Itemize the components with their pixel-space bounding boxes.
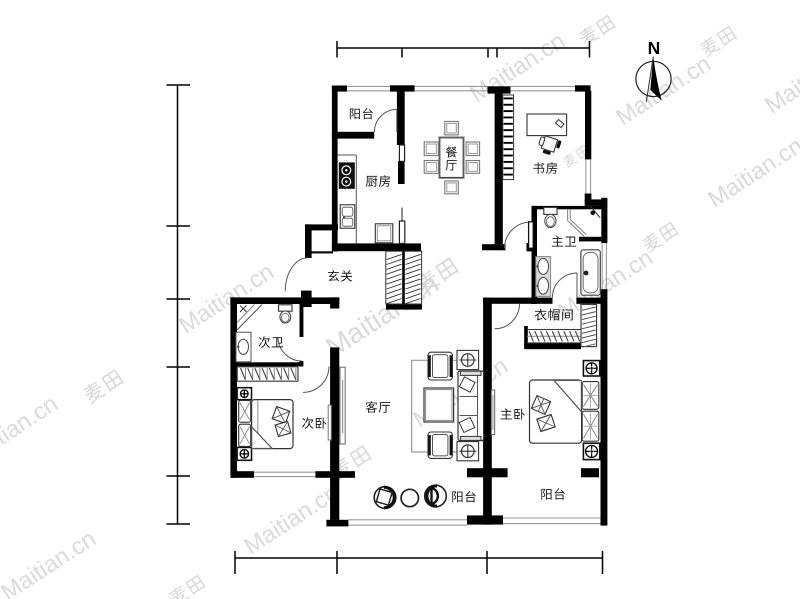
- svg-text:N: N: [648, 38, 661, 58]
